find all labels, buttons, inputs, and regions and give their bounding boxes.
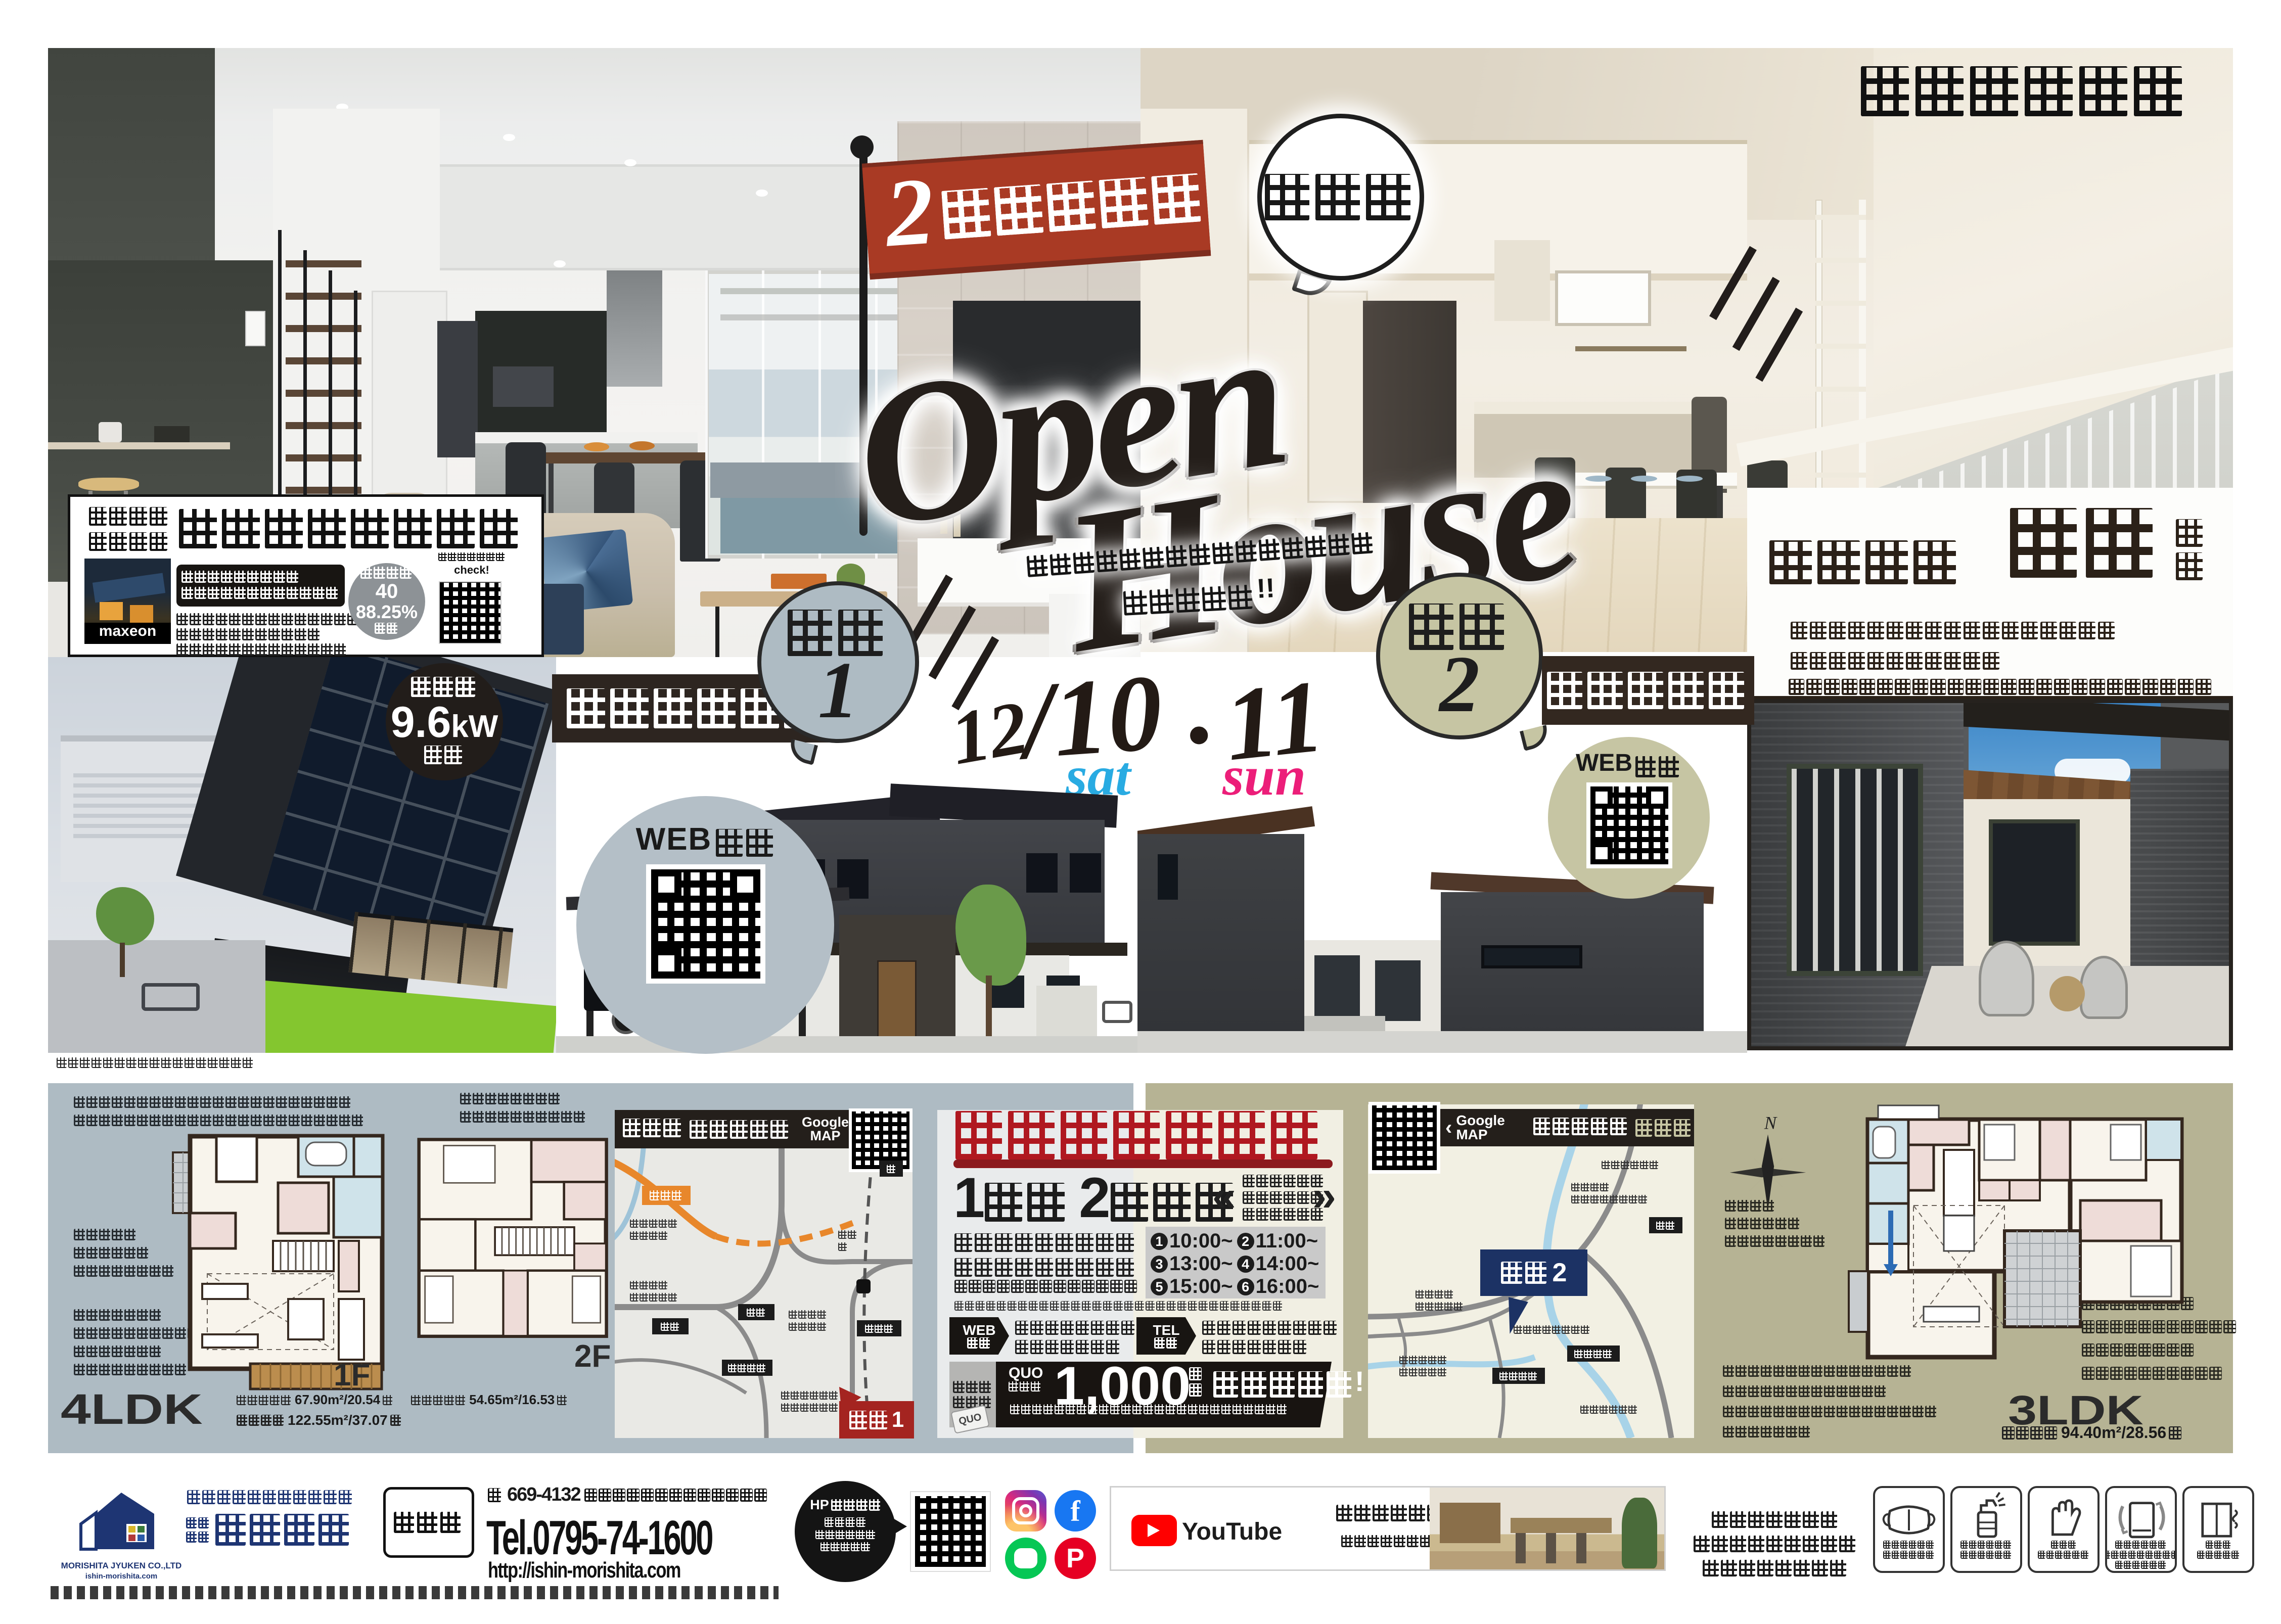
svg-text:N: N	[1764, 1114, 1777, 1133]
